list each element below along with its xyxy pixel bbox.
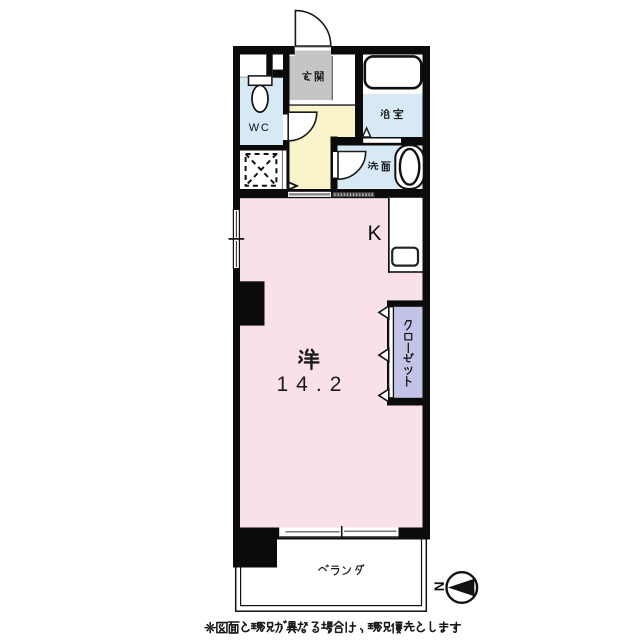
svg-text:14.2: 14.2 (277, 373, 350, 396)
svg-text:K: K (368, 222, 382, 245)
svg-text:WC: WC (249, 122, 271, 134)
svg-text:N: N (432, 582, 447, 592)
